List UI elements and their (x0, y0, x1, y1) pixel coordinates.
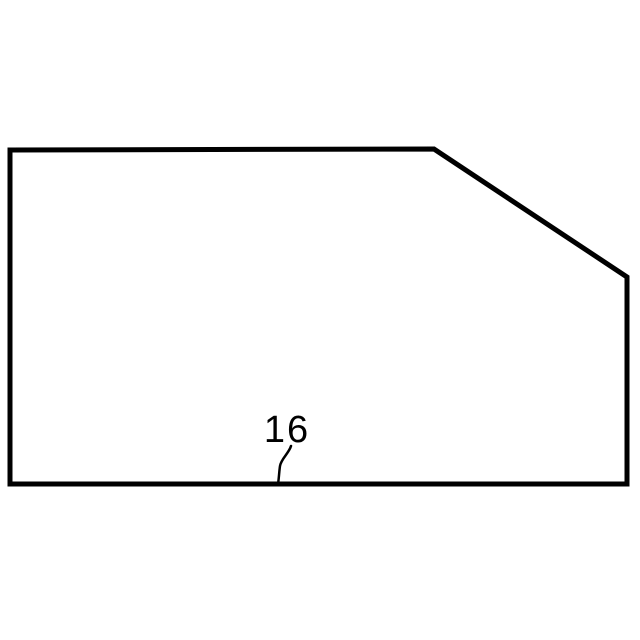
patent-figure-canvas: 16 (0, 0, 640, 640)
reference-label-16: 16 (264, 409, 310, 451)
leader-line (278, 446, 291, 484)
figure-drawing: 16 (0, 0, 640, 640)
chamfered-rectangle-outline (10, 149, 627, 484)
